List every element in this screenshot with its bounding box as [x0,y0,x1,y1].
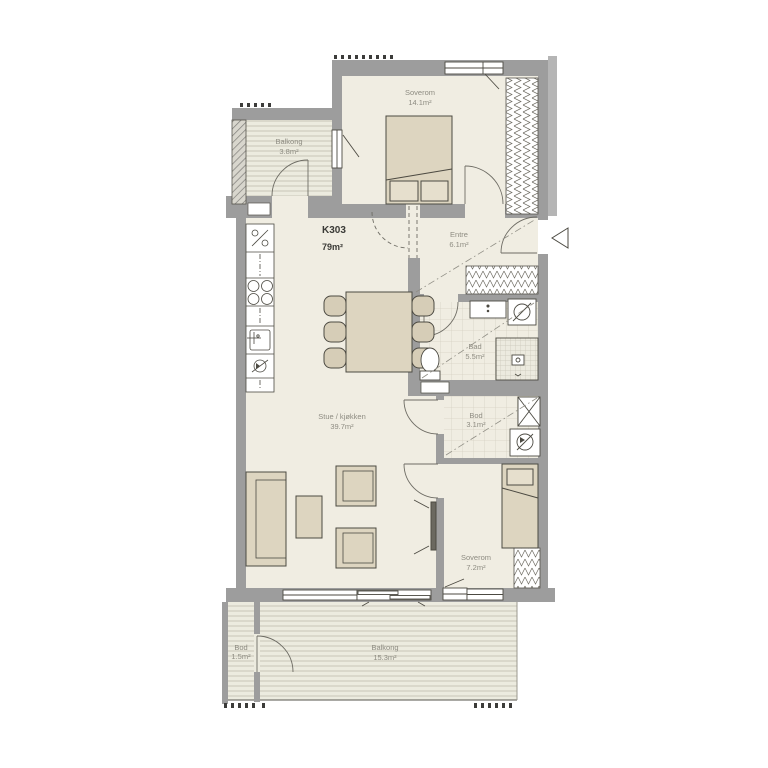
sofa [246,472,286,566]
window-soverom2 [467,589,503,600]
opening-bod-door [436,400,444,434]
wall-bod-ute-west [222,602,228,704]
deck-balkong1 [246,120,332,198]
deck-bod-ute [228,602,254,700]
window-stue-south [283,590,357,600]
wall-bod-soverom2 [436,458,548,464]
single-bed [502,464,538,548]
deck-balkong2 [260,602,517,700]
dining-table [324,292,434,372]
wardrobe-soverom2 [514,548,540,588]
wall-balkong1-top [232,108,342,120]
opening-balkong1-door [272,196,308,218]
coffee-table [296,496,322,538]
vanity-sink [470,301,506,318]
wall-stue-west [236,196,246,588]
washing-machine [508,299,536,325]
balkong1-railing [232,120,246,204]
armchair-1 [336,466,376,506]
toilet [420,348,440,380]
wall-top [332,60,548,76]
kitchen-counter [246,224,274,392]
wall-outer-band [548,56,557,216]
shower [496,338,538,380]
wardrobe-entre [466,266,538,294]
entrance-marker [552,228,568,248]
bad-threshold [421,382,449,393]
ventilation-unit [510,429,540,456]
opening-entrance-door [538,220,548,254]
double-bed [386,116,452,204]
wall-corner-br [548,588,555,602]
wardrobe-soverom1 [506,78,538,214]
opening-soverom2-door [436,464,444,498]
opening-stue-entre [406,204,420,258]
floorplan-canvas: K303 79m² Soverom 14.1m² Balkong 3.8m² E… [0,0,768,768]
water-heater [518,397,540,426]
armchair-2 [336,528,376,568]
wall-niche [248,203,270,215]
opening-soverom1-door [465,204,505,218]
wall-right [538,60,548,602]
floorplan-drawing [0,0,768,768]
